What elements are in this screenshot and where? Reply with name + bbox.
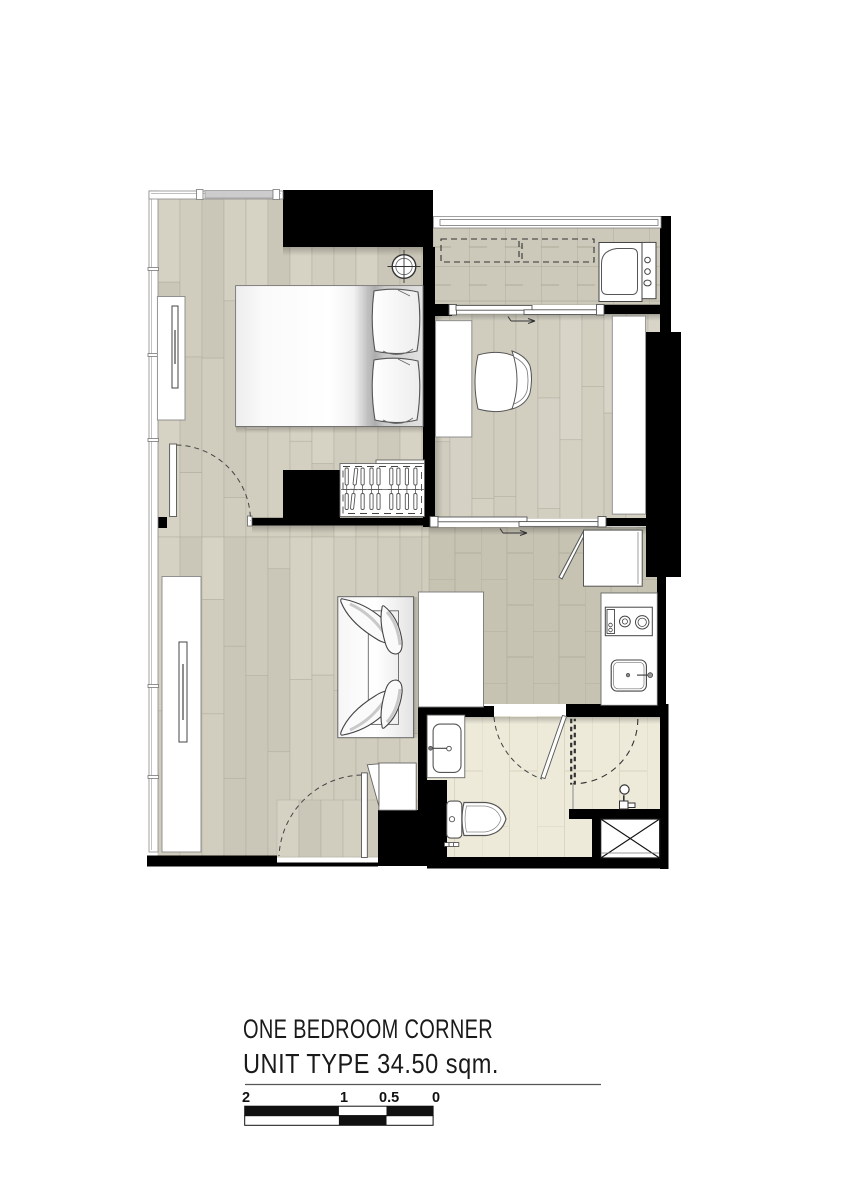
- svg-text:0.5: 0.5: [379, 1090, 399, 1106]
- svg-text:ONE BEDROOM CORNER: ONE BEDROOM CORNER: [243, 1014, 493, 1044]
- svg-text:2: 2: [242, 1090, 250, 1106]
- svg-text:0: 0: [432, 1090, 440, 1106]
- svg-text:UNIT TYPE 34.50 sqm.: UNIT TYPE 34.50 sqm.: [243, 1048, 499, 1079]
- svg-text:1: 1: [340, 1090, 348, 1106]
